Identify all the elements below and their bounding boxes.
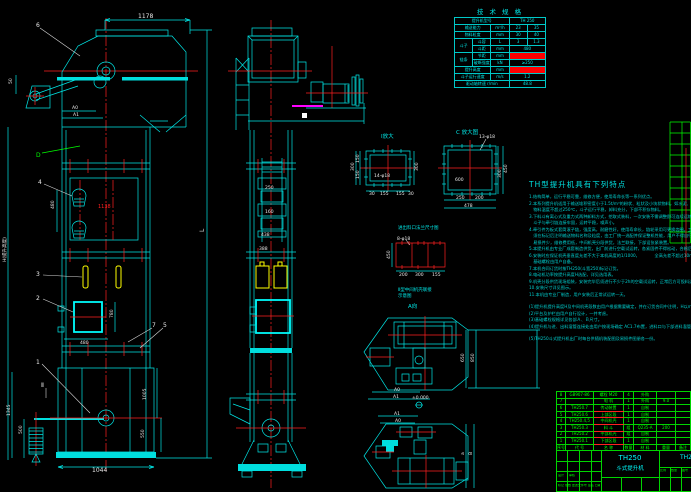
bom-no: 8 [557, 392, 566, 399]
dim-500: 500 [18, 425, 24, 434]
bom-qty: 1 [624, 418, 634, 425]
dim-p-a1: A1 [393, 394, 399, 400]
bom-note [676, 398, 691, 405]
dim-550: 550 [140, 429, 146, 438]
spec-bucket-label: 斗子 [455, 39, 473, 53]
bom-wt [657, 405, 676, 412]
bom-code: TH250.2 [566, 431, 594, 438]
title-qty-label: 数量 [671, 469, 677, 472]
bom-note [676, 424, 691, 431]
bom-mat: 自制 [634, 431, 657, 438]
bom-qty: 1 [624, 398, 634, 405]
a-view-label: A向 [408, 302, 417, 310]
dim-480: 480 [50, 200, 56, 209]
dim-c-200: 200 [475, 195, 484, 201]
spec-speed-value: 1.2 [509, 74, 545, 81]
bom-wt [657, 431, 676, 438]
spec-speed-label: 斗子运行速度 [455, 74, 491, 81]
dim-q-b: B [468, 452, 474, 455]
spec-table: 技 术 规 格 提升机型号 TH 250 输送能力 m³/h 23 35 物料粒… [454, 8, 546, 88]
bom-note [676, 431, 691, 438]
dim-160: 160 [265, 209, 274, 215]
bom-no: 7 [557, 398, 566, 405]
spec-pitch-unit: mm [491, 46, 509, 53]
spec-size-label: 物料粒度 [455, 32, 491, 39]
detail-i-label: Ⅰ放大 [381, 132, 394, 140]
spec-speed-unit: m/s [491, 74, 509, 81]
spec-vol-unit: L [491, 39, 509, 46]
dim-780: 780 [109, 309, 115, 318]
dim-p-a0: A0 [394, 387, 400, 393]
bom-mat: 外购 [634, 398, 657, 405]
spec-break-value: ≥250 [509, 60, 545, 67]
bom-name: 传动装置 [594, 405, 624, 412]
part-7: 7 [152, 322, 156, 329]
bom-no: 5 [557, 411, 566, 418]
title-check-label: 审核 [569, 474, 575, 477]
dim-1178: 1178 [138, 13, 153, 20]
dim-438: 438 [261, 232, 270, 238]
bom-name: 中间机壳 [594, 418, 624, 425]
schematic-caption-2: 示意图 [398, 292, 412, 299]
bom-name: 下部区段 [594, 438, 624, 445]
bom-wt [657, 418, 676, 425]
flange-caption: 进出料口法兰尺寸图 [398, 224, 439, 231]
dim-p-850: 850 [470, 353, 476, 362]
title-model: TH250 [601, 454, 659, 462]
plan-view-top [364, 316, 540, 408]
bom-mat: 自制 [634, 405, 657, 412]
dim-p-zero: ±0.000 [412, 395, 429, 401]
dim-c-600: 600 [455, 177, 464, 183]
bom-code [566, 398, 594, 405]
dim-height-h: H(提升高度) [1, 237, 8, 262]
spec-height-label: 提升高度 [455, 67, 491, 74]
part-1: 1 [36, 359, 40, 366]
title-drawing-no: TH250 [660, 454, 691, 461]
dim-c-300: 300 [497, 169, 503, 178]
title-scale-label: 比例 [660, 469, 666, 472]
note-line: (4)提升机与进、出料溜管连接处由用户按现场确定 AC1.7布置，进料口与下部进… [529, 324, 691, 331]
title-sheet-label: 图号 [682, 469, 688, 472]
bom-mat: 自制 [634, 418, 657, 425]
bom-name: 螺栓 M20 [594, 392, 624, 399]
spec-size-v2: 40 [527, 32, 545, 39]
bom-note [676, 438, 691, 445]
magenta-mark [292, 105, 323, 107]
bom-name: 料 斗 [594, 424, 624, 431]
label-d: D [36, 152, 41, 159]
dim-i-155b: 155 [396, 191, 405, 197]
bom-code: TH250.6 [566, 411, 594, 418]
dim-p-650: 650 [460, 353, 466, 362]
notes-block: TH型提升机具有下列特点 1.结构简单，运行平稳可靠，维修方便，使用寿命长等一系… [529, 179, 691, 343]
spec-pitch-label: 斗距 [473, 46, 491, 53]
bom-mat: 外购 [634, 392, 657, 399]
title-block: 标记 处数 更改文件号 签名 日期 设计 审核 TH250 斗式提升机 TH25… [556, 450, 691, 492]
dim-1345: 1345 [6, 404, 12, 416]
dim-c-250: 250 [456, 195, 465, 201]
notes-title: TH型提升机具有下列特点 [529, 179, 691, 190]
bom-wt [657, 392, 676, 399]
part-6: 6 [36, 22, 40, 29]
detail-flange-c [438, 139, 503, 208]
spec-chainpitch-unit: mm [491, 53, 509, 60]
dim-i-155a: 155 [380, 191, 389, 197]
title-name: 斗式提升机 [601, 464, 659, 472]
front-view [8, 18, 212, 472]
bom-qty: 1 [624, 411, 634, 418]
note-line: (1)提升机提升高度H及中间机壳段数由用户根据需要确定，并在订货合同中注明，H以… [529, 304, 691, 311]
bom-code: TH250.4,5 [566, 418, 594, 425]
dim-1005: 1005 [142, 388, 148, 400]
dim-l: L [199, 228, 206, 232]
bom-wt: 9.0 [657, 398, 676, 405]
part-4: 4 [38, 179, 42, 186]
bom-qty: 组 [624, 431, 634, 438]
bolt-note-8: 8-φ18 [397, 236, 410, 242]
dim-r-450: 450 [386, 250, 392, 259]
spec-size-unit: mm [491, 32, 509, 39]
bolt-note-14: 14-φ18 [374, 173, 390, 179]
cad-canvas: { "colors":{"cyan":"#00e6e6","green":"#0… [0, 0, 691, 491]
white-mark [302, 113, 307, 118]
dim-480b: 480 [80, 340, 89, 346]
spec-capacity-v2: 35 [527, 25, 545, 32]
bom-code: GB907-86 [566, 392, 594, 399]
bom-code: TH250.1 [566, 438, 594, 445]
spec-chain-label: 链条 [455, 53, 473, 67]
dim-r-300: 300 [415, 272, 424, 278]
dim-50: 50 [8, 78, 14, 84]
bom-no: 2 [557, 431, 566, 438]
bolt-note-13: 13-φ18 [479, 134, 495, 140]
note-line: (5)TH250斗式提升机出厂时每台供随机装配图及易损件图册各一份。 [529, 336, 691, 343]
spec-rpm-label: 驱动轴转速 r/min [455, 81, 510, 88]
dim-q-a: a [461, 452, 466, 455]
spec-vol-v2: 1.3 [527, 39, 545, 46]
bom-code: TH250.3 [566, 424, 594, 431]
spec-capacity-label: 输送能力 [455, 25, 491, 32]
spec-chainpitch-label: 节距 [473, 53, 491, 60]
spec-height-unit: mm [491, 67, 509, 74]
spec-height-value [509, 67, 545, 74]
bom-note [676, 405, 691, 412]
dim-q-a0: A0 [395, 418, 401, 424]
dim-c-450: 450 [503, 164, 509, 173]
bom-no: 6 [557, 405, 566, 412]
bom-mat: Q235-A [634, 424, 657, 431]
detail-red-flange [392, 240, 445, 271]
bom-qty: 4 [624, 392, 634, 399]
spec-size-v1: 30 [509, 32, 527, 39]
schematic-caption-1: Ⅱ型中间机壳联接 [398, 286, 432, 293]
part-5: 5 [163, 322, 167, 329]
bom-table: 8GB907-86螺栓 M204外购 7电 机1外购9.0 6TH250.7传动… [556, 391, 691, 451]
detail-c-label: C 放大图 [456, 128, 479, 136]
spec-break-label: 破断强度 [473, 60, 491, 67]
bom-name: 上部区段 [594, 411, 624, 418]
detail-flange-i [356, 145, 416, 191]
plan-view-bottom [364, 416, 474, 488]
dim-r-200: 200 [399, 272, 408, 278]
spec-break-unit: kN [491, 60, 509, 67]
bom-no: 3 [557, 424, 566, 431]
part-2: 2 [36, 295, 40, 302]
bom-qty: 1 [624, 438, 634, 445]
dim-r-155: 155 [432, 272, 441, 278]
bom-note [676, 392, 691, 399]
note-line: 5.本提升机由专业厂成套制造供货，出厂前进行空载试运转，各紧固件不得松动，合格后… [529, 246, 691, 253]
spec-title: 技 术 规 格 [455, 8, 546, 18]
bom-code: TH250.7 [566, 405, 594, 412]
spec-pitch-value: 480 [509, 46, 545, 53]
spec-vol-v1: 3 [509, 39, 527, 46]
bom-no: 4 [557, 418, 566, 425]
note-line: 须在标记后注明输送物料名称及粒度，由工厂统一选配并保证整机性能，用户不得自行更换… [529, 233, 691, 240]
side-view [228, 20, 368, 488]
spec-capacity-unit: m³/h [491, 25, 509, 32]
bom-no: 1 [557, 438, 566, 445]
bom-qty: 1 [624, 405, 634, 412]
bom-wt [657, 411, 676, 418]
dim-i-30b: 30 [408, 191, 414, 197]
bom-name: 中部机壳 [594, 431, 624, 438]
bom-qty: 组 [624, 424, 634, 431]
dim-i-300r: 300 [414, 162, 420, 171]
spec-capacity-v1: 23 [509, 25, 527, 32]
bom-wt [657, 438, 676, 445]
dim-q-a1: A1 [394, 411, 400, 417]
part-3: 3 [36, 271, 40, 278]
spec-rpm-value: 48.8 [509, 81, 545, 88]
dim-i-150a: 150 [355, 154, 361, 163]
dim-a1: A1 [73, 112, 79, 118]
bom-note [676, 418, 691, 425]
dim-250: 250 [265, 185, 274, 191]
spec-vol-label: 斗容 [473, 39, 491, 46]
dim-388: 388 [259, 246, 268, 252]
bom-mat: 自制 [634, 411, 657, 418]
spec-chainpitch-value [509, 53, 545, 60]
bom-mat: 自制 [634, 438, 657, 445]
dim-i-300l: 300 [350, 162, 356, 171]
dim-1044: 1044 [92, 467, 107, 474]
dim-1138: 1138 [98, 204, 111, 210]
spec-model-label: 提升机型号 [455, 18, 510, 25]
dim-c-478: 478 [464, 203, 473, 209]
title-design-label: 设计 [558, 474, 564, 477]
dim-a0: A0 [72, 105, 78, 111]
title-mark-row: 标记 处数 更改文件号 签名 日期 [558, 484, 600, 487]
bom-name: 电 机 [594, 398, 624, 405]
bom-note [676, 411, 691, 418]
spec-model-value: TH 250 [509, 18, 545, 25]
bom-wt: 200 [657, 424, 676, 431]
section-ii: Ⅱ [41, 382, 44, 389]
dim-i-30a: 30 [369, 191, 375, 197]
